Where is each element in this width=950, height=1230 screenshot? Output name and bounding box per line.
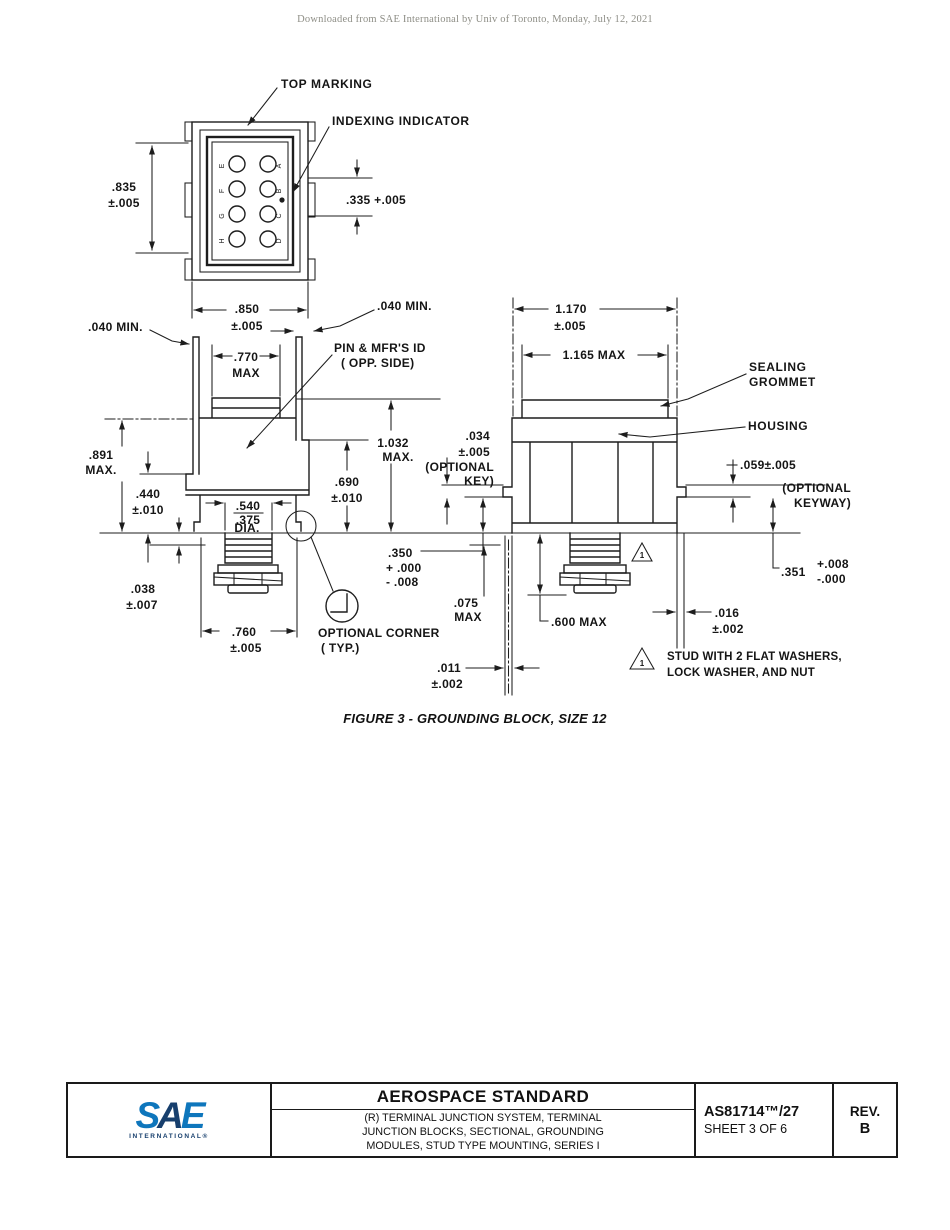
indexing-indicator-label: INDEXING INDICATOR bbox=[332, 114, 470, 128]
sae-logo-e: E bbox=[181, 1095, 203, 1136]
sae-logo-subtext: INTERNATIONAL® bbox=[129, 1133, 209, 1140]
cavity-letter: F bbox=[219, 189, 226, 193]
dim-1170-tol: ±.005 bbox=[554, 319, 585, 333]
dim-835-tol: ±.005 bbox=[108, 196, 139, 210]
dim-059: .059±.005 bbox=[740, 458, 796, 472]
document-number: AS81714™/27 bbox=[704, 1104, 832, 1120]
dim-011: .011 bbox=[437, 661, 461, 675]
dim-690-tol: ±.010 bbox=[331, 491, 362, 505]
sheet-number: SHEET 3 OF 6 bbox=[704, 1122, 832, 1136]
flag-number: 1 bbox=[640, 659, 645, 668]
dim-770: .770 bbox=[234, 350, 259, 364]
sae-logo-a: A bbox=[157, 1095, 181, 1136]
dim-600: .600 MAX bbox=[551, 615, 607, 629]
mounting-stud-front bbox=[214, 533, 282, 593]
top-marking-label: TOP MARKING bbox=[281, 77, 373, 91]
flag-note-text-2: LOCK WASHER, AND NUT bbox=[667, 667, 815, 679]
dim-835: .835 bbox=[112, 180, 137, 194]
dimension-lines bbox=[122, 88, 779, 668]
dim-034-note-1: (OPTIONAL bbox=[425, 460, 494, 474]
dim-770-max: MAX bbox=[232, 366, 260, 380]
title-block: SAE INTERNATIONAL® AEROSPACE STANDARD (R… bbox=[66, 1082, 898, 1158]
document-title-cell: AEROSPACE STANDARD (R) TERMINAL JUNCTION… bbox=[272, 1084, 696, 1156]
revision-label: REV. bbox=[850, 1104, 880, 1119]
dim-850-tol: ±.005 bbox=[231, 319, 262, 333]
dim-350-minus: - .008 bbox=[386, 575, 419, 589]
pin-mfr-id-label-2: ( OPP. SIDE) bbox=[341, 356, 414, 370]
dim-690: .690 bbox=[335, 475, 360, 489]
dim-1032: 1.032 bbox=[377, 436, 409, 450]
grounding-block-technical-drawing: E F G H A B C D bbox=[0, 0, 950, 705]
top-view: E F G H A B C D bbox=[185, 122, 315, 280]
dim-016: .016 bbox=[715, 606, 740, 620]
document-number-cell: AS81714™/27 SHEET 3 OF 6 bbox=[696, 1084, 834, 1156]
subtitle-line: MODULES, STUD TYPE MOUNTING, SERIES I bbox=[272, 1140, 694, 1154]
dim-850: .850 bbox=[235, 302, 260, 316]
dim-350: .350 bbox=[388, 546, 413, 560]
contact-cavity-holes bbox=[229, 156, 276, 247]
cavity-letter: C bbox=[276, 213, 283, 218]
flag-note-triangle-icon: 1 bbox=[632, 543, 652, 561]
housing-label: HOUSING bbox=[748, 419, 808, 433]
dim-dia: DIA. bbox=[234, 521, 259, 535]
dim-335: .335 +.005 bbox=[346, 193, 406, 207]
pin-mfr-id-label-1: PIN & MFR'S ID bbox=[334, 341, 426, 355]
subtitle-line: JUNCTION BLOCKS, SECTIONAL, GROUNDING bbox=[272, 1126, 694, 1140]
dim-059-note-1: (OPTIONAL bbox=[782, 481, 851, 495]
dim-034-tol: ±.005 bbox=[459, 445, 490, 459]
mounting-stud-side bbox=[560, 533, 630, 593]
dim-016-tol: ±.002 bbox=[712, 622, 743, 636]
document-type-title: AEROSPACE STANDARD bbox=[272, 1084, 694, 1110]
document-subtitle: (R) TERMINAL JUNCTION SYSTEM, TERMINAL J… bbox=[272, 1110, 694, 1156]
indexing-indicator-dot bbox=[279, 197, 284, 202]
sealing-grommet-label-1: SEALING bbox=[749, 360, 807, 374]
cavity-letter: B bbox=[276, 188, 283, 193]
sae-logo-s: S bbox=[135, 1095, 157, 1136]
dim-059-note-2: KEYWAY) bbox=[794, 496, 851, 510]
flag-note: 1 STUD WITH 2 FLAT WASHERS, LOCK WASHER,… bbox=[630, 648, 842, 679]
dim-1170: 1.170 bbox=[555, 302, 587, 316]
dim-040-min-left: .040 MIN. bbox=[88, 320, 143, 334]
dim-760: .760 bbox=[232, 625, 257, 639]
dim-891: .891 bbox=[89, 448, 114, 462]
dim-440-tol: ±.010 bbox=[132, 503, 163, 517]
side-view: 1 bbox=[503, 400, 686, 695]
dim-038-tol: ±.007 bbox=[126, 598, 157, 612]
dim-891-max: MAX. bbox=[85, 463, 116, 477]
dim-351-plus: +.008 bbox=[817, 557, 849, 571]
flag-note-text-1: STUD WITH 2 FLAT WASHERS, bbox=[667, 651, 842, 663]
dim-075: .075 bbox=[454, 596, 479, 610]
figure-caption: FIGURE 3 - GROUNDING BLOCK, SIZE 12 bbox=[0, 711, 950, 726]
dim-011-tol: ±.002 bbox=[432, 677, 463, 691]
dim-760-tol: ±.005 bbox=[230, 641, 261, 655]
cavity-letter: H bbox=[219, 238, 226, 243]
dim-040-min-right: .040 MIN. bbox=[377, 299, 432, 313]
dim-038: .038 bbox=[131, 582, 156, 596]
dim-075-max: MAX bbox=[454, 610, 482, 624]
subtitle-line: (R) TERMINAL JUNCTION SYSTEM, TERMINAL bbox=[272, 1112, 694, 1126]
extension-lines bbox=[100, 143, 825, 637]
dim-540: .540 bbox=[236, 499, 261, 513]
dim-034-note-2: KEY) bbox=[464, 474, 494, 488]
cavity-letters: E F G H A B C D bbox=[219, 163, 283, 243]
dim-1165: 1.165 MAX bbox=[563, 348, 626, 362]
optional-corner-label-2: ( TYP.) bbox=[321, 641, 360, 655]
flag-number: 1 bbox=[640, 551, 645, 560]
optional-corner-label-1: OPTIONAL CORNER bbox=[318, 626, 440, 640]
cavity-letter: A bbox=[276, 163, 283, 168]
sae-logo: SAE INTERNATIONAL® bbox=[68, 1084, 272, 1156]
sae-logo-text: SAE bbox=[135, 1100, 202, 1131]
cavity-letter: E bbox=[219, 163, 226, 168]
sealing-grommet-label-2: GROMMET bbox=[749, 375, 816, 389]
dim-1032-max: MAX. bbox=[382, 450, 413, 464]
dim-350-plus: + .000 bbox=[386, 561, 422, 575]
cavity-letter: G bbox=[219, 213, 226, 218]
cavity-letter: D bbox=[276, 238, 283, 243]
dim-351: .351 bbox=[781, 565, 806, 579]
dim-034: .034 bbox=[465, 429, 490, 443]
dim-440: .440 bbox=[136, 487, 161, 501]
revision-cell: REV. B bbox=[834, 1084, 896, 1156]
revision-value: B bbox=[860, 1121, 870, 1137]
dim-351-minus: -.000 bbox=[817, 572, 846, 586]
